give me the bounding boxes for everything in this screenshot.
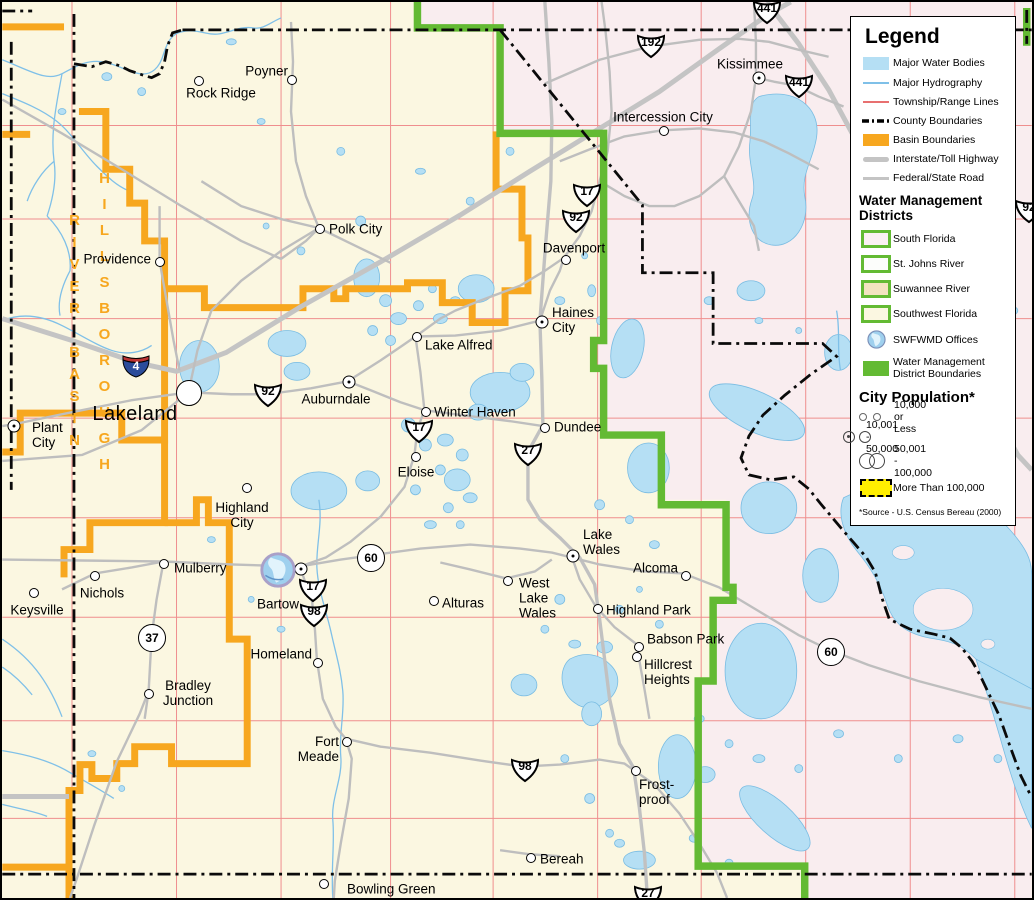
city-marker xyxy=(411,452,421,462)
us-route-shield: 17 xyxy=(571,181,603,209)
city-label: Alturas xyxy=(442,595,484,610)
city-marker xyxy=(631,766,641,776)
district-swatch-icon xyxy=(861,255,891,273)
water-swatch-icon xyxy=(859,57,893,70)
city-marker xyxy=(593,604,603,614)
city-label: Keysville xyxy=(10,602,63,617)
city-label: Hillcrest Heights xyxy=(644,657,692,687)
city-marker xyxy=(242,483,252,493)
state-road-shield: 60 xyxy=(817,638,845,666)
city-label: Rock Ridge xyxy=(186,85,256,100)
wmd-district-item: Southwest Florida xyxy=(859,305,1007,323)
interstate-shield: 4 xyxy=(120,352,152,380)
population-circle-icon xyxy=(843,431,855,443)
wmd-district-item: St. Johns River xyxy=(859,255,1007,273)
wmd-district-item: Suwannee River xyxy=(859,280,1007,298)
route-number: 4 xyxy=(120,359,152,373)
wmd-heading: Water Management Districts xyxy=(859,194,1007,224)
state-road-shield: 37 xyxy=(138,624,166,652)
city-marker xyxy=(561,255,571,265)
legend-item-township-lines: Township/Range Lines xyxy=(859,96,1007,108)
route-number: 441 xyxy=(783,75,815,89)
city-label: Eloise xyxy=(398,464,435,479)
city-marker xyxy=(295,563,308,576)
population-circle-icon xyxy=(869,453,885,469)
city-marker xyxy=(343,376,356,389)
us-route-shield: 17 xyxy=(403,417,435,445)
city-marker xyxy=(155,257,165,267)
us-route-shield: 441 xyxy=(751,0,783,26)
swfwmd-office-icon xyxy=(260,552,296,588)
route-number: 92 xyxy=(560,210,592,224)
city-label: Nichols xyxy=(80,585,124,600)
city-marker xyxy=(29,588,39,598)
route-number: 60 xyxy=(358,551,384,565)
route-number: 17 xyxy=(571,184,603,198)
city-label: Bradley Junction xyxy=(163,678,213,708)
city-label: Babson Park xyxy=(647,631,724,646)
city-label: Frost- proof xyxy=(639,777,674,807)
us-route-shield: 98 xyxy=(298,601,330,629)
legend-footnote: *Source - U.S. Census Bereau (2000) xyxy=(859,507,1007,517)
population-item: 50,001 - 100,000 xyxy=(859,453,875,469)
legend-item-interstate: Interstate/Toll Highway xyxy=(859,153,1007,165)
city-label: Lake Wales xyxy=(583,527,620,557)
district-swatch-icon xyxy=(861,230,891,248)
wmd-district-list: South Florida St. Johns River Suwannee R… xyxy=(859,230,1007,323)
route-number: 60 xyxy=(818,645,844,659)
city-100k-swatch-icon xyxy=(859,479,893,497)
federal-road-line-icon xyxy=(859,177,893,180)
city-marker xyxy=(287,75,297,85)
city-marker xyxy=(536,316,549,329)
city-marker xyxy=(319,879,329,889)
city-label: Bereah xyxy=(540,851,584,866)
wmd-boundary-swatch-icon xyxy=(859,361,893,376)
route-number: 192 xyxy=(635,35,667,49)
legend-item-hydrography: Major Hydrography xyxy=(859,77,1007,89)
city-label: Bartow xyxy=(257,596,299,611)
city-label: Winter Haven xyxy=(434,404,516,419)
globe-icon xyxy=(859,330,893,349)
us-route-shield: 92 xyxy=(560,207,592,235)
city-label: Haines City xyxy=(552,305,594,335)
city-marker xyxy=(753,72,766,85)
city-marker xyxy=(503,576,513,586)
city-label: Davenport xyxy=(543,240,605,255)
city-marker xyxy=(412,332,422,342)
township-line-icon xyxy=(859,101,893,103)
district-swatch-icon xyxy=(861,305,891,323)
legend-item-county-boundaries: County Boundaries xyxy=(859,115,1007,127)
city-label: Lakeland xyxy=(92,403,177,425)
legend-item-offices: SWFWMD Offices xyxy=(859,330,1007,349)
city-label: Alcoma xyxy=(633,560,678,575)
city-label: Poyner xyxy=(245,63,288,78)
city-marker xyxy=(634,642,644,652)
route-number: 27 xyxy=(632,886,664,900)
city-label: Plant City xyxy=(32,420,63,450)
route-number: 92 xyxy=(1013,200,1034,214)
city-label: Lake Alfred xyxy=(425,337,493,352)
legend-item-federal-road: Federal/State Road xyxy=(859,172,1007,184)
city-marker xyxy=(315,224,325,234)
route-number: 441 xyxy=(751,1,783,15)
population-item: 10,001 - 50,000 xyxy=(859,431,871,443)
city-label: Dundee xyxy=(554,419,601,434)
basin-boundaries xyxy=(2,27,528,898)
city-label: Mulberry xyxy=(174,560,227,575)
city-marker xyxy=(144,689,154,699)
city-label: Fort Meade xyxy=(298,734,339,764)
city-label: Highland Park xyxy=(606,602,691,617)
city-label: Providence xyxy=(83,251,151,266)
city-marker xyxy=(540,423,550,433)
city-label: Polk City xyxy=(329,221,382,236)
route-number: 92 xyxy=(252,384,284,398)
us-route-shield: 27 xyxy=(512,440,544,468)
city-marker xyxy=(90,571,100,581)
route-number: 27 xyxy=(512,443,544,457)
state-road-shield: 60 xyxy=(357,544,385,572)
wmd-district-item: South Florida xyxy=(859,230,1007,248)
city-label: West Lake Wales xyxy=(519,575,556,620)
map-canvas: HILLSBOROUGH RIVER BASIN PoynerRock Ridg… xyxy=(0,0,1034,900)
route-number: 98 xyxy=(298,604,330,618)
basin-label-hillsborough: HILLSBOROUGH xyxy=(96,170,113,482)
population-heading: City Population* xyxy=(859,390,1007,407)
us-route-shield: 92 xyxy=(252,381,284,409)
route-number: 98 xyxy=(509,759,541,773)
population-list: 10,000 or Less 10,001 - 50,000 50,001 - … xyxy=(859,413,1007,469)
district-swatch-icon xyxy=(861,280,891,298)
city-marker xyxy=(313,658,323,668)
city-marker xyxy=(681,571,691,581)
city-marker xyxy=(526,853,536,863)
basin-swatch-icon xyxy=(859,134,893,146)
city-marker xyxy=(632,652,642,662)
city-marker xyxy=(342,737,352,747)
route-number: 17 xyxy=(403,420,435,434)
city-label: Bowling Green xyxy=(347,881,436,896)
city-label: Kissimmee xyxy=(717,56,783,71)
city-label: Intercession City xyxy=(613,109,713,124)
city-marker xyxy=(176,380,202,406)
legend-item-wmd-boundaries: Water Management District Boundaries xyxy=(859,356,1007,380)
us-route-shield: 441 xyxy=(783,72,815,100)
us-route-shield: 92 xyxy=(1013,197,1034,225)
us-route-shield: 17 xyxy=(297,576,329,604)
city-label: Auburndale xyxy=(301,391,370,406)
city-marker xyxy=(421,407,431,417)
us-route-shield: 27 xyxy=(632,883,664,900)
legend-item-100k: More Than 100,000 xyxy=(859,479,1007,497)
legend-item-water-bodies: Major Water Bodies xyxy=(859,57,1007,70)
city-marker xyxy=(567,550,580,563)
hydrography-line-icon xyxy=(859,82,893,84)
city-marker xyxy=(159,559,169,569)
city-marker xyxy=(659,126,669,136)
city-label: Homeland xyxy=(250,646,312,661)
route-number: 37 xyxy=(139,631,165,645)
interstate-line-icon xyxy=(859,157,893,162)
legend-panel: Legend Major Water Bodies Major Hydrogra… xyxy=(850,16,1016,526)
city-marker xyxy=(429,596,439,606)
city-label: Highland City xyxy=(215,500,268,530)
city-marker xyxy=(8,420,21,433)
legend-item-basin-boundaries: Basin Boundaries xyxy=(859,134,1007,146)
legend-title: Legend xyxy=(865,25,1007,49)
us-route-shield: 192 xyxy=(635,32,667,60)
basin-label-river-basin: RIVER BASIN xyxy=(66,212,83,454)
us-route-shield: 98 xyxy=(509,756,541,784)
route-number: 17 xyxy=(297,579,329,593)
county-dashdot-icon xyxy=(859,118,893,124)
